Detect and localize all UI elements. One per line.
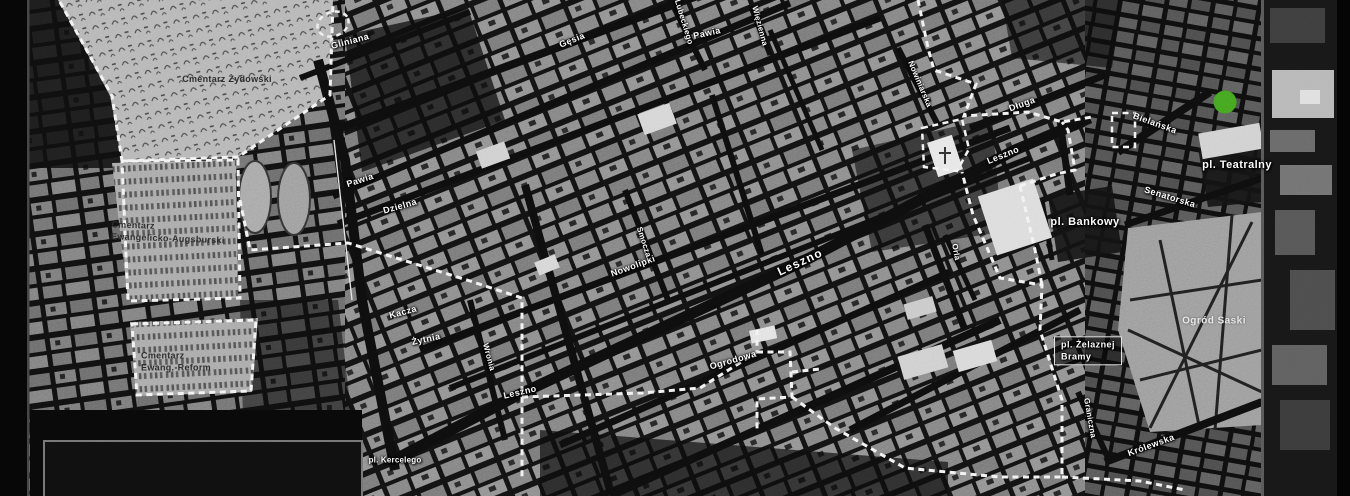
label-ogrod-saski: Ogród Saski xyxy=(1182,316,1246,327)
label-line: pl. Żelaznej xyxy=(1061,339,1115,351)
label-line: Bramy xyxy=(1061,351,1115,363)
label-pl-kercelego: pl. Kercelego xyxy=(369,456,422,465)
map-viewport[interactable]: Cmentarz Żydowski Cmentarz Ewangelicko-A… xyxy=(0,0,1350,496)
label-line: Ewang.-Reform xyxy=(141,362,211,374)
label-cmentarz-reform: Cmentarz Ewang.-Reform xyxy=(141,350,211,373)
label-cmentarz-zydowski: Cmentarz Żydowski xyxy=(182,74,272,84)
label-line: Cmentarz xyxy=(141,350,211,362)
label-pl-bankowy: pl. Bankowy xyxy=(1050,216,1119,228)
label-pl-teatralny: pl. Teatralny xyxy=(1202,159,1272,171)
label-pl-zelaznej-bramy: pl. Żelaznej Bramy xyxy=(1054,336,1122,365)
label-cmentarz-ewangelicki: Cmentarz Ewangelicko-Augsburski xyxy=(111,219,225,246)
